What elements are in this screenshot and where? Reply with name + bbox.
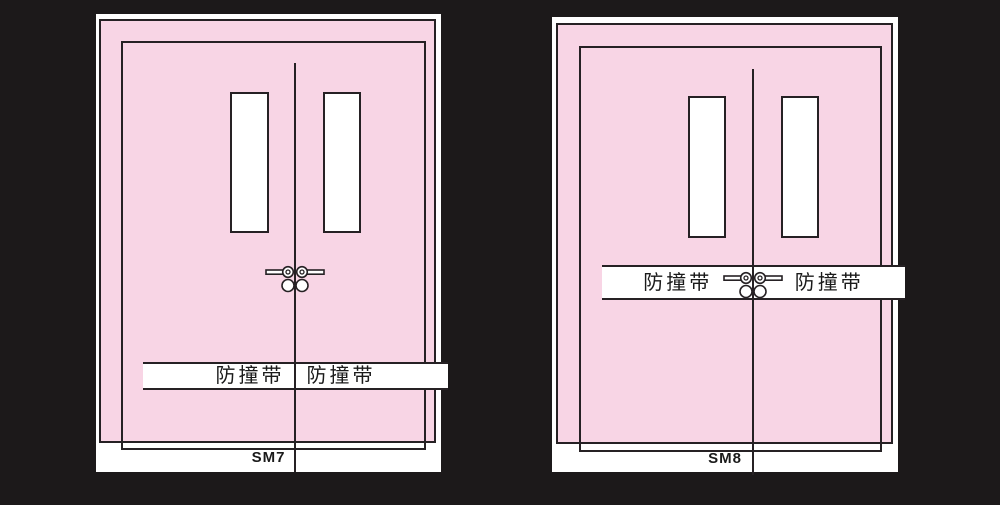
door-knob-right-icon xyxy=(296,280,308,292)
door-label: SM8 xyxy=(552,444,898,472)
door-handle-hardware xyxy=(263,262,327,298)
door-frame: 防撞带 防撞带 xyxy=(556,23,893,444)
door-knob-left-icon xyxy=(740,286,752,298)
band-left-half: 防撞带 xyxy=(143,364,295,388)
band-label-left: 防撞带 xyxy=(216,366,285,386)
door-leaves: 防撞带 防撞带 xyxy=(121,41,426,450)
door-window-left xyxy=(230,92,269,233)
lever-handle-right-icon xyxy=(755,273,782,284)
band-label-left: 防撞带 xyxy=(643,273,712,293)
door-knob-left-icon xyxy=(282,280,294,292)
lever-handle-right-icon xyxy=(297,267,324,278)
door-figure-sm8: 防撞带 防撞带 xyxy=(552,17,898,472)
band-label-right: 防撞带 xyxy=(307,366,376,386)
band-label-right: 防撞带 xyxy=(795,273,864,293)
door-handle-hardware xyxy=(721,268,785,304)
door-window-right xyxy=(781,96,819,238)
door-label: SM7 xyxy=(96,443,441,472)
door-window-right xyxy=(323,92,361,233)
door-knob-right-icon xyxy=(754,286,766,298)
door-leaves: 防撞带 防撞带 xyxy=(579,46,882,452)
lever-handle-left-icon xyxy=(724,273,751,284)
band-right-half: 防撞带 xyxy=(295,364,449,388)
door-figure-sm7: 防撞带 防撞带 xyxy=(96,14,441,472)
door-window-left xyxy=(688,96,726,238)
door-frame: 防撞带 防撞带 xyxy=(99,19,436,443)
drawing-canvas: 防撞带 防撞带 xyxy=(0,0,1000,505)
lever-handle-left-icon xyxy=(266,267,293,278)
